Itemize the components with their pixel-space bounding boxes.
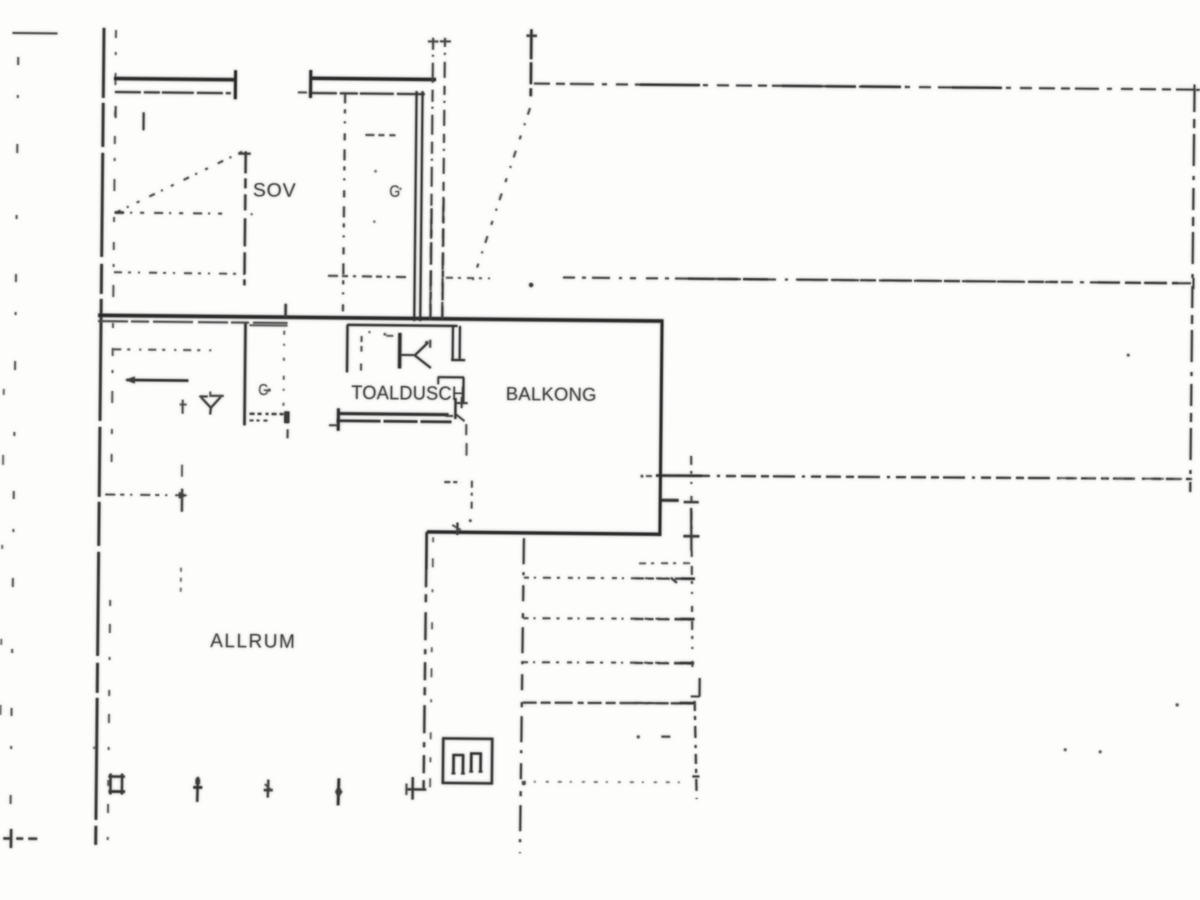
svg-text:BALKONG: BALKONG	[506, 383, 597, 405]
svg-text:G: G	[258, 382, 268, 399]
svg-text:ALLRUM: ALLRUM	[210, 631, 296, 653]
svg-text:G: G	[389, 183, 400, 202]
svg-text:SOV: SOV	[253, 179, 297, 201]
svg-text:TOALDUSCH: TOALDUSCH	[351, 382, 465, 405]
